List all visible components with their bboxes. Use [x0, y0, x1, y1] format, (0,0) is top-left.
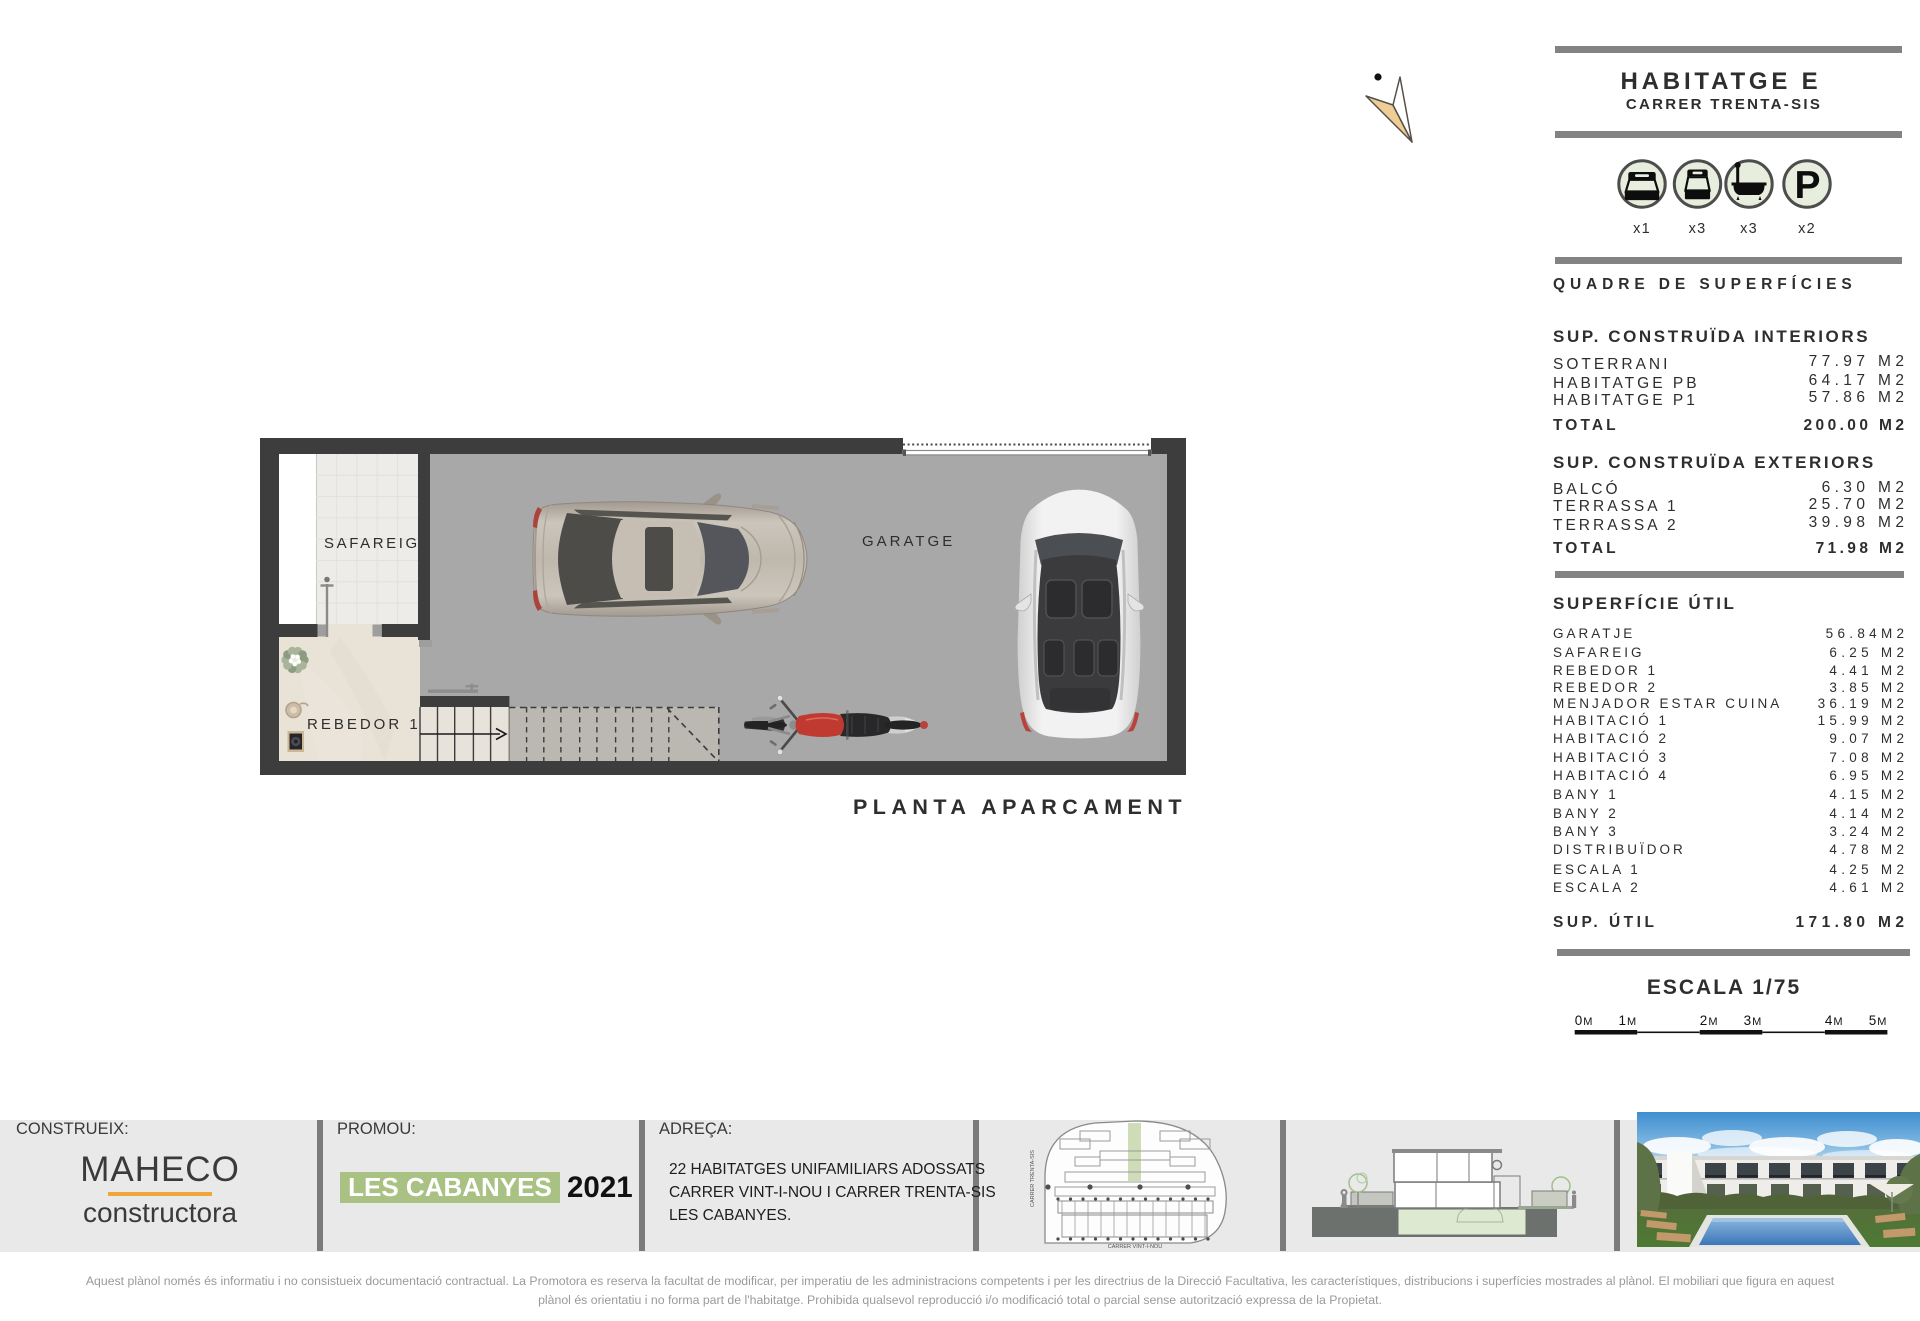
- svg-text:SAFAREIG: SAFAREIG: [324, 535, 420, 552]
- svg-text:x1: x1: [1633, 221, 1651, 237]
- svg-text:GARATGE: GARATGE: [862, 533, 955, 550]
- svg-text:4M: 4M: [1825, 1013, 1844, 1028]
- svg-text:CARRER VINT-I-NOU: CARRER VINT-I-NOU: [1108, 1244, 1162, 1249]
- svg-text:3M: 3M: [1744, 1013, 1763, 1028]
- svg-text:CARRER TRENTA-SIS: CARRER TRENTA-SIS: [1030, 1150, 1036, 1207]
- svg-text:5M: 5M: [1869, 1013, 1888, 1028]
- svg-text:0M: 0M: [1575, 1013, 1594, 1028]
- svg-text:REBEDOR 1: REBEDOR 1: [307, 716, 421, 733]
- svg-text:x2: x2: [1798, 221, 1816, 237]
- svg-text:1M: 1M: [1619, 1013, 1638, 1028]
- svg-text:x3: x3: [1689, 221, 1707, 237]
- svg-text:x3: x3: [1740, 221, 1758, 237]
- svg-text:2M: 2M: [1700, 1013, 1719, 1028]
- svg-text:P: P: [1794, 164, 1820, 207]
